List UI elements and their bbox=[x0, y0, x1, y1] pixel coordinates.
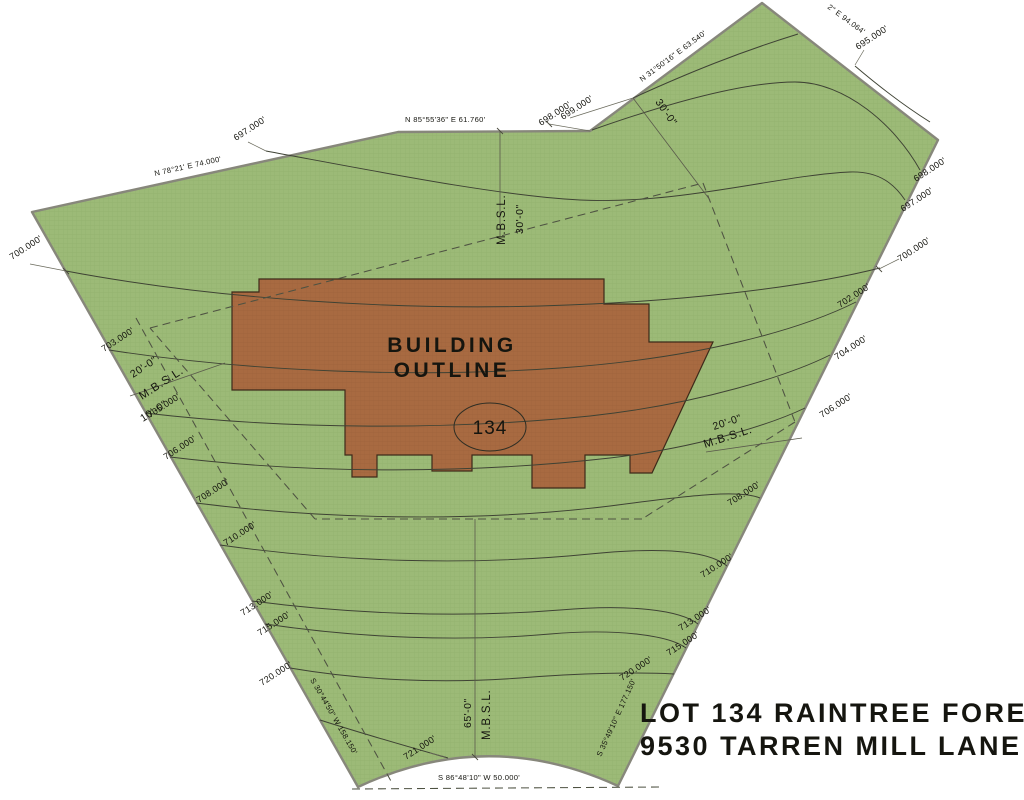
contour-label-700-right: 700.000' bbox=[896, 235, 932, 263]
setback-label-mbsl-top: M.B.S.L. bbox=[496, 195, 508, 246]
contour-label-720-left: 720.000' bbox=[258, 659, 294, 687]
setback-label-30ft-top: 30'-0" bbox=[514, 204, 526, 234]
title-line-2: 9530 TARREN MILL LANE bbox=[640, 731, 1022, 761]
building-label-line1: BUILDING bbox=[387, 334, 517, 357]
site-plan-svg: N 78°21' E 74.000' N 85°55'36" E 61.760'… bbox=[0, 0, 1024, 800]
title-block: LOT 134 RAINTREE FOREST 9530 TARREN MILL… bbox=[640, 698, 1024, 761]
right-of-way-chord bbox=[352, 787, 660, 789]
bearing-northeast2: 2" E 94.064' bbox=[826, 2, 867, 36]
building-label-line2: OUTLINE bbox=[394, 359, 511, 382]
bearing-top: N 85°55'36" E 61.760' bbox=[405, 115, 486, 124]
leader-695 bbox=[855, 50, 864, 65]
setback-label-65ft-rear: 65'-0" bbox=[462, 698, 474, 728]
leader-700-right bbox=[879, 259, 899, 269]
setback-label-mbsl-rear: M.B.S.L. bbox=[481, 690, 493, 741]
lot-number: 134 bbox=[473, 418, 508, 439]
contour-label-700-west: 700.000' bbox=[8, 233, 44, 261]
contour-label-697-top: 697.000' bbox=[232, 114, 268, 142]
leader-697-top bbox=[248, 142, 266, 151]
bearing-bottom: S 86°48'10" W 50.000' bbox=[438, 773, 520, 782]
contour-label-706-right: 706.000' bbox=[818, 391, 854, 419]
leader-700-west bbox=[30, 264, 66, 271]
title-line-1: LOT 134 RAINTREE FOREST bbox=[640, 698, 1024, 728]
